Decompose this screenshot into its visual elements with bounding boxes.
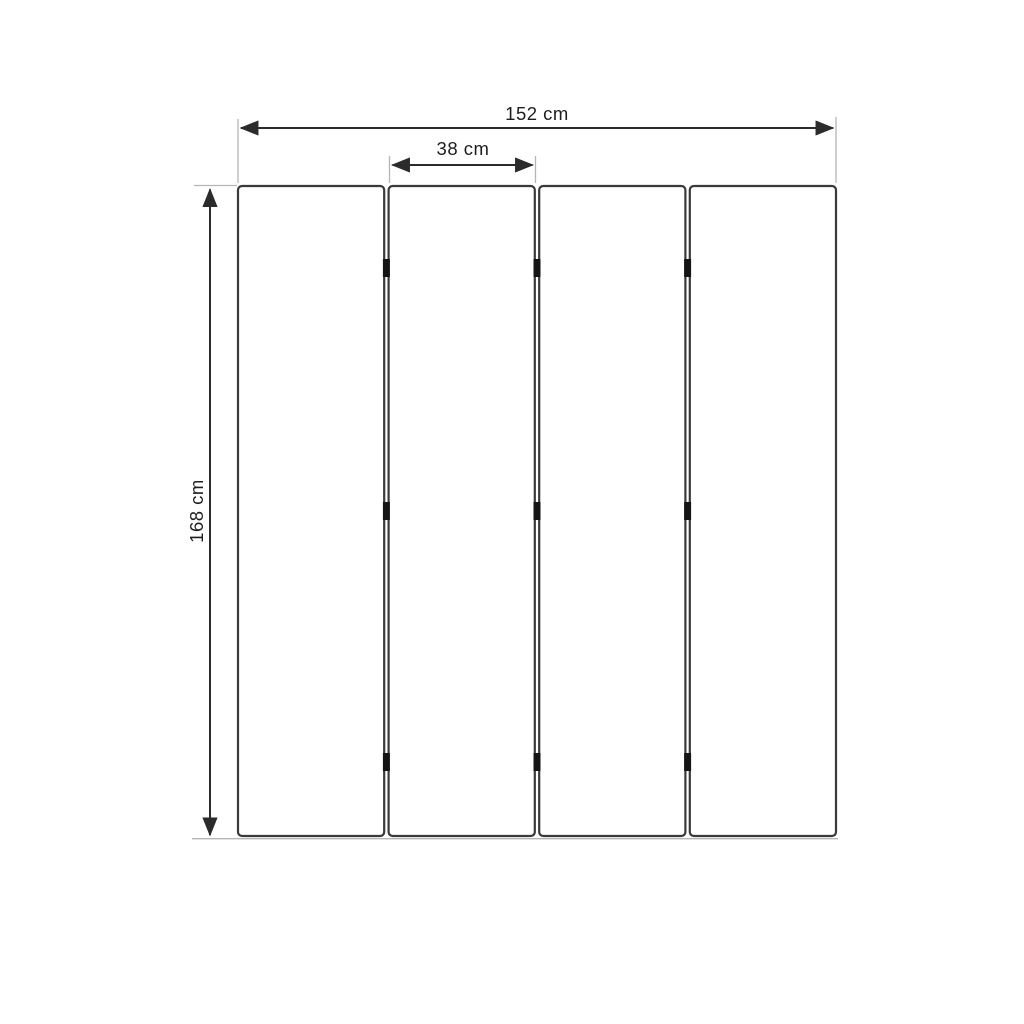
panel-width-label: 38 cm [437, 138, 490, 159]
hinge-gap2-top [534, 259, 541, 277]
height-dimension: 168 cm [186, 190, 210, 836]
drawing-canvas: 152 cm 38 cm 168 cm [0, 0, 1024, 1024]
hinge-gap1-middle [383, 502, 390, 520]
total-width-label: 152 cm [505, 103, 569, 124]
panel-1 [238, 186, 384, 836]
height-label: 168 cm [186, 479, 207, 543]
panel-width-dimension: 38 cm [393, 138, 533, 165]
dimension-diagram: 152 cm 38 cm 168 cm [0, 0, 1024, 1024]
hinge-gap2-bottom [534, 753, 541, 771]
hinge-gap3-bottom [684, 753, 691, 771]
total-width-dimension: 152 cm [241, 103, 833, 128]
hinge-gap1-top [383, 259, 390, 277]
hinge-gap3-top [684, 259, 691, 277]
hinge-gap3-middle [684, 502, 691, 520]
panel-4 [690, 186, 836, 836]
hinge-gap2-middle [534, 502, 541, 520]
hinge-gap1-bottom [383, 753, 390, 771]
panel-3 [539, 186, 685, 836]
panel-2 [389, 186, 535, 836]
